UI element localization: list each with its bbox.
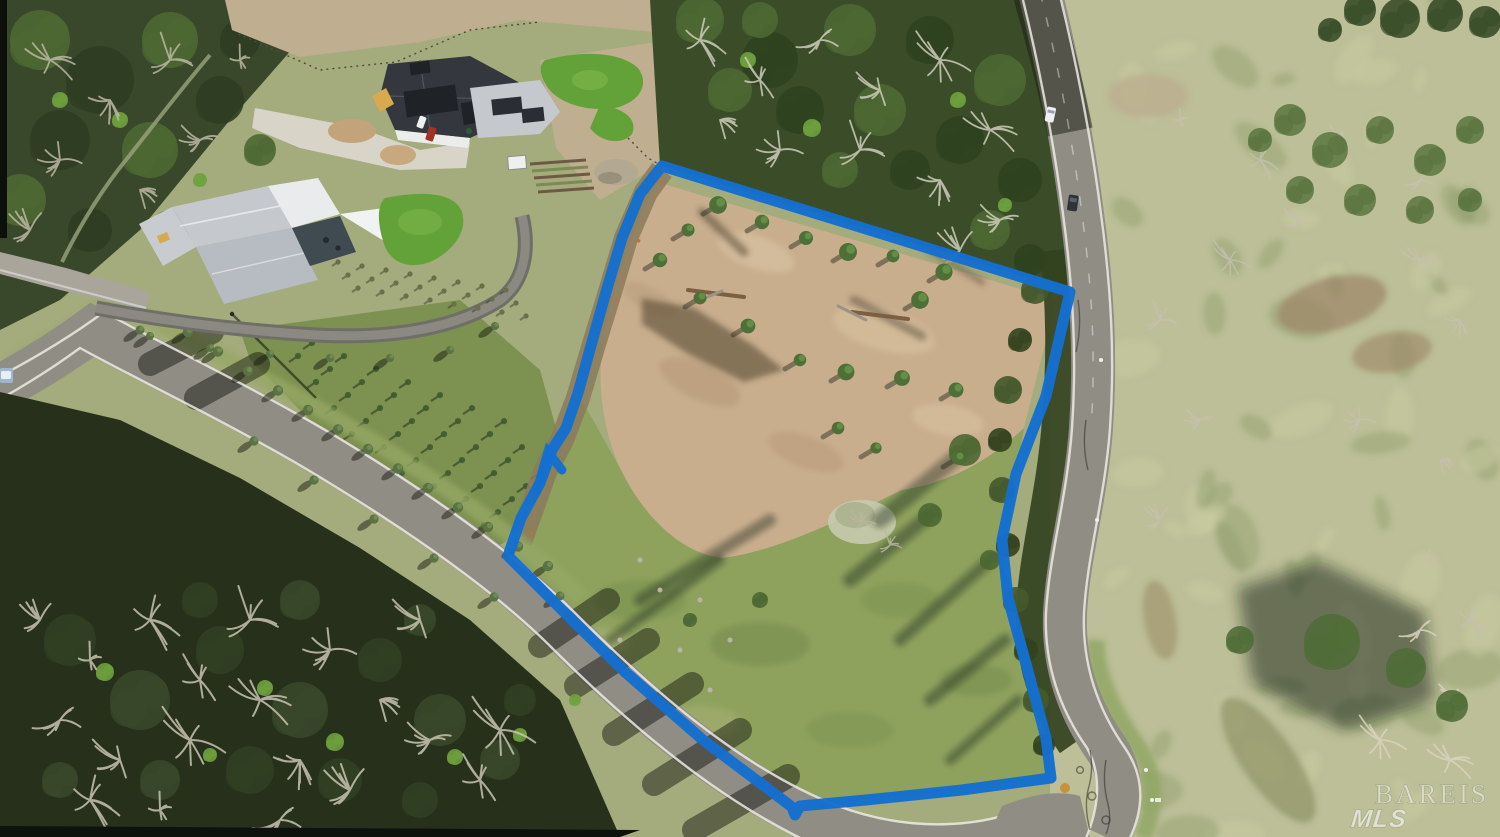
greenhouse-shed xyxy=(508,155,527,170)
vehicle-car-left xyxy=(0,368,13,383)
dirt-circle xyxy=(380,145,416,165)
dirt-circle xyxy=(328,119,376,143)
shadow-edge xyxy=(0,0,7,238)
orange-bush xyxy=(1060,783,1070,793)
aerial-photograph: BAREIS MLS xyxy=(0,0,1500,837)
utility-pole xyxy=(230,312,234,316)
watermark-mls: MLS xyxy=(1350,805,1409,833)
aerial-photo-canvas: BAREIS MLS xyxy=(0,0,1500,837)
